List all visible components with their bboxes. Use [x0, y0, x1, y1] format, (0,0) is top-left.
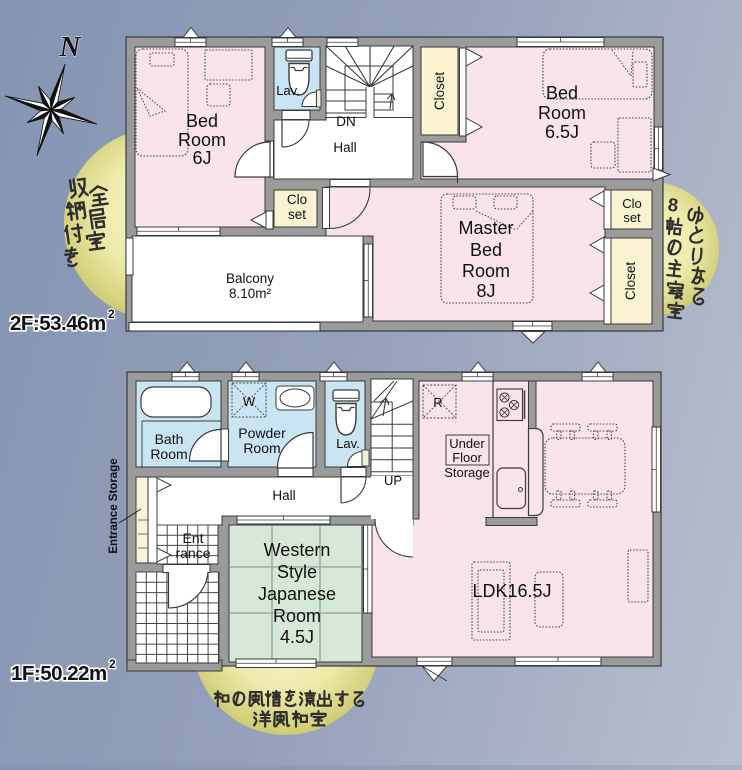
svg-text:W: W [243, 394, 256, 409]
svg-text:Japanese: Japanese [258, 584, 336, 604]
svg-text:Hall: Hall [272, 488, 295, 503]
svg-text:set: set [288, 207, 306, 222]
svg-text:Bed: Bed [470, 240, 502, 260]
svg-text:Lav.: Lav. [336, 436, 360, 451]
svg-text:Room: Room [273, 606, 321, 626]
svg-text:R: R [433, 395, 442, 410]
svg-text:Closet: Closet [623, 262, 638, 301]
svg-text:Room: Room [178, 130, 226, 150]
svg-text:8.10m²: 8.10m² [229, 286, 272, 301]
svg-text:DN: DN [336, 114, 356, 129]
svg-text:Bed: Bed [546, 83, 578, 103]
svg-text:6.5J: 6.5J [545, 122, 579, 142]
svg-text:Entrance Storage: Entrance Storage [108, 458, 120, 553]
svg-text:Ent: Ent [182, 530, 203, 546]
svg-text:1F:50.22m: 1F:50.22m [11, 662, 107, 685]
svg-text:Storage: Storage [444, 465, 490, 480]
svg-text:UP: UP [384, 473, 402, 488]
svg-text:Under: Under [449, 436, 485, 451]
svg-text:Bed: Bed [186, 111, 218, 131]
svg-text:4.5J: 4.5J [280, 627, 314, 647]
svg-text:set: set [623, 210, 641, 225]
svg-text:Clo: Clo [622, 196, 642, 211]
svg-text:8: 8 [667, 194, 679, 216]
svg-text:Master: Master [458, 218, 513, 238]
svg-text:2F:53.46m: 2F:53.46m [10, 312, 106, 335]
svg-text:Style: Style [277, 562, 317, 582]
svg-text:6J: 6J [192, 148, 211, 168]
svg-text:Room: Room [243, 440, 280, 456]
svg-text:Balcony: Balcony [226, 271, 274, 286]
svg-text:Powder: Powder [238, 425, 286, 441]
svg-text:Lav.: Lav. [276, 83, 300, 98]
svg-text:Floor: Floor [452, 450, 482, 465]
svg-text:rance: rance [175, 545, 210, 561]
svg-text:Room: Room [538, 103, 586, 123]
svg-text:Hall: Hall [333, 140, 356, 155]
svg-text:Room: Room [462, 261, 510, 281]
svg-text:8J: 8J [476, 281, 495, 301]
svg-text:Western: Western [264, 540, 331, 560]
svg-text:LDK16.5J: LDK16.5J [472, 581, 551, 601]
svg-text:Closet: Closet [432, 72, 447, 111]
svg-text:Room: Room [150, 446, 187, 462]
svg-text:Bath: Bath [155, 431, 184, 447]
svg-text:2: 2 [109, 657, 116, 671]
svg-text:2: 2 [108, 307, 115, 321]
svg-text:Clo: Clo [287, 192, 307, 207]
svg-text:N: N [59, 31, 82, 63]
